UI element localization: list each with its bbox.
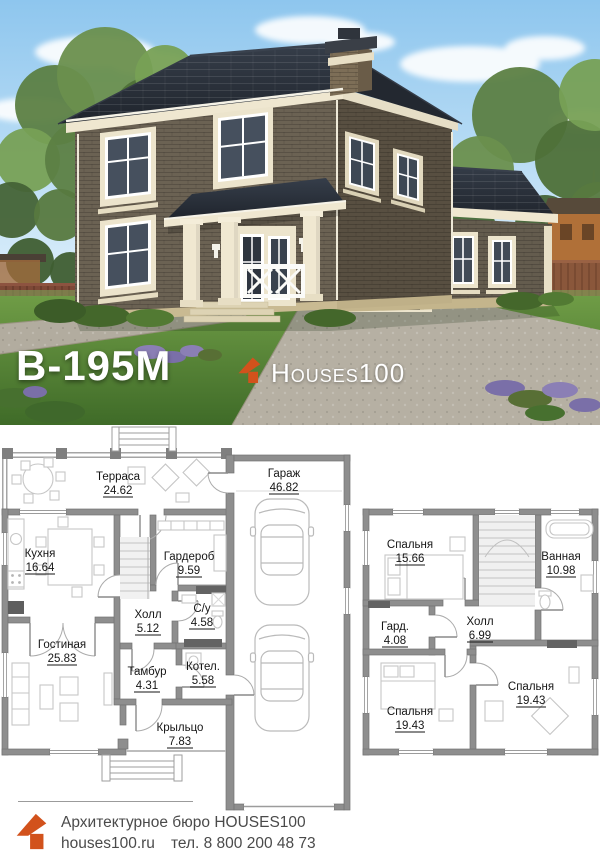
- room-kitchen-area: 16.64: [26, 562, 55, 574]
- room-garage-area: 46.82: [270, 482, 299, 494]
- poster: В-195М Houses100: [0, 0, 600, 854]
- utility-block: [547, 640, 577, 648]
- room-garage-label: Гараж: [268, 468, 301, 480]
- house-ar row-icon: [237, 346, 264, 390]
- room-hall-area: 5.12: [137, 623, 159, 635]
- house-arrow-icon: [14, 810, 50, 852]
- footer-divider: [18, 801, 193, 802]
- porch: [164, 178, 346, 322]
- room-bedroom2-area: 19.43: [396, 720, 425, 732]
- utility-block: [184, 639, 222, 647]
- room-terrace-area: 24.62: [104, 485, 133, 497]
- room-living-label: Гостиная: [38, 639, 86, 651]
- room-vestibule-area: 4.31: [136, 680, 158, 692]
- footer-site: houses100.ru: [61, 835, 155, 852]
- room-kitchen-label: Кухня: [25, 548, 56, 560]
- model-label: В-195М: [16, 342, 171, 390]
- room-bedroom3-area: 19.43: [517, 695, 546, 707]
- utility-block: [368, 601, 390, 608]
- car: [251, 499, 314, 605]
- brand-logo: Houses100: [237, 344, 405, 390]
- room-bedroom2-label: Спальня: [387, 706, 433, 718]
- house-render: В-195М Houses100: [0, 0, 600, 425]
- footer-bureau-line: Архитектурное бюро HOUSES100: [61, 812, 316, 833]
- room-living-area: 25.83: [48, 653, 77, 665]
- floor-plans: Терраса 24.62 Гараж 46.82 Кухня 16.64 Га…: [0, 425, 600, 815]
- second-floor-plan: Спальня 15.66 Ванная 10.98 Гард. 4.08 Хо…: [355, 425, 600, 815]
- room-wardrobe-area: 9.59: [178, 565, 200, 577]
- room-bedroom1-label: Спальня: [387, 539, 433, 551]
- brand-text: Houses100: [271, 360, 405, 390]
- room-bedroom1-area: 15.66: [396, 553, 425, 565]
- footer-phone: тел. 8 800 200 48 73: [171, 835, 316, 852]
- room-hall2-label: Холл: [466, 616, 493, 628]
- first-floor-plan: Терраса 24.62 Гараж 46.82 Кухня 16.64 Га…: [0, 425, 352, 815]
- room-hall2-area: 6.99: [469, 630, 491, 642]
- room-bathroom-area: 10.98: [547, 565, 576, 577]
- room-wardrobe-label: Гардероб: [164, 551, 215, 563]
- room-closet-label: Гард.: [381, 621, 409, 633]
- porch-steps-plan: [102, 755, 182, 781]
- room-bedroom3-label: Спальня: [508, 681, 554, 693]
- room-bathroom-label: Ванная: [541, 551, 580, 563]
- stairwell: [479, 515, 535, 606]
- room-porch-label: Крыльцо: [157, 722, 204, 734]
- car: [251, 625, 314, 731]
- room-porch-area: 7.83: [169, 736, 191, 748]
- room-vestibule-label: Тамбур: [127, 666, 166, 678]
- room-boiler-label: Котел.: [186, 661, 220, 673]
- room-wc-label: С/у: [193, 603, 211, 615]
- footer: Архитектурное бюро HOUSES100 houses100.r…: [14, 810, 316, 854]
- room-closet-area: 4.08: [384, 635, 406, 647]
- room-hall-label: Холл: [134, 609, 161, 621]
- room-terrace-label: Терраса: [96, 471, 141, 483]
- interior-stairs: [120, 537, 150, 599]
- terrace-stairs: [112, 427, 176, 451]
- room-wc-area: 4.58: [191, 617, 213, 629]
- room-boiler-area: 5.58: [192, 675, 214, 687]
